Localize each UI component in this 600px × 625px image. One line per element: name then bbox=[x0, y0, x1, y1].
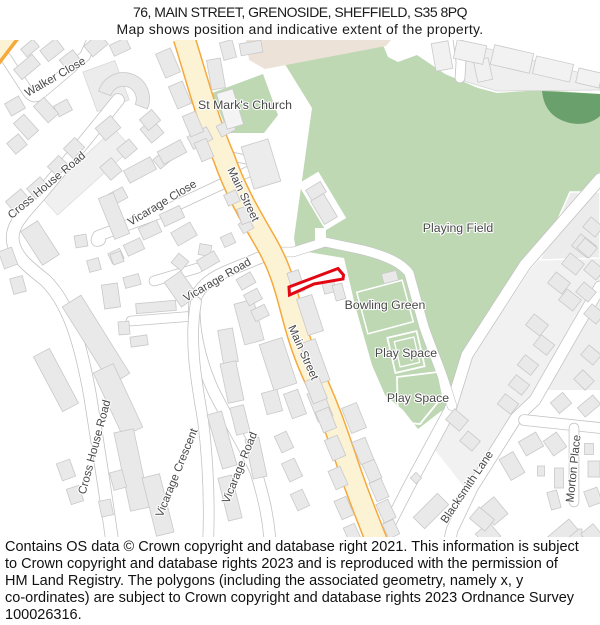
svg-text:St Mark's Church: St Mark's Church bbox=[198, 98, 292, 112]
svg-text:Playing Field: Playing Field bbox=[423, 221, 494, 235]
svg-text:Play Space: Play Space bbox=[375, 346, 437, 360]
svg-text:Play Space: Play Space bbox=[387, 391, 449, 405]
svg-text:Bowling Green: Bowling Green bbox=[345, 298, 426, 312]
